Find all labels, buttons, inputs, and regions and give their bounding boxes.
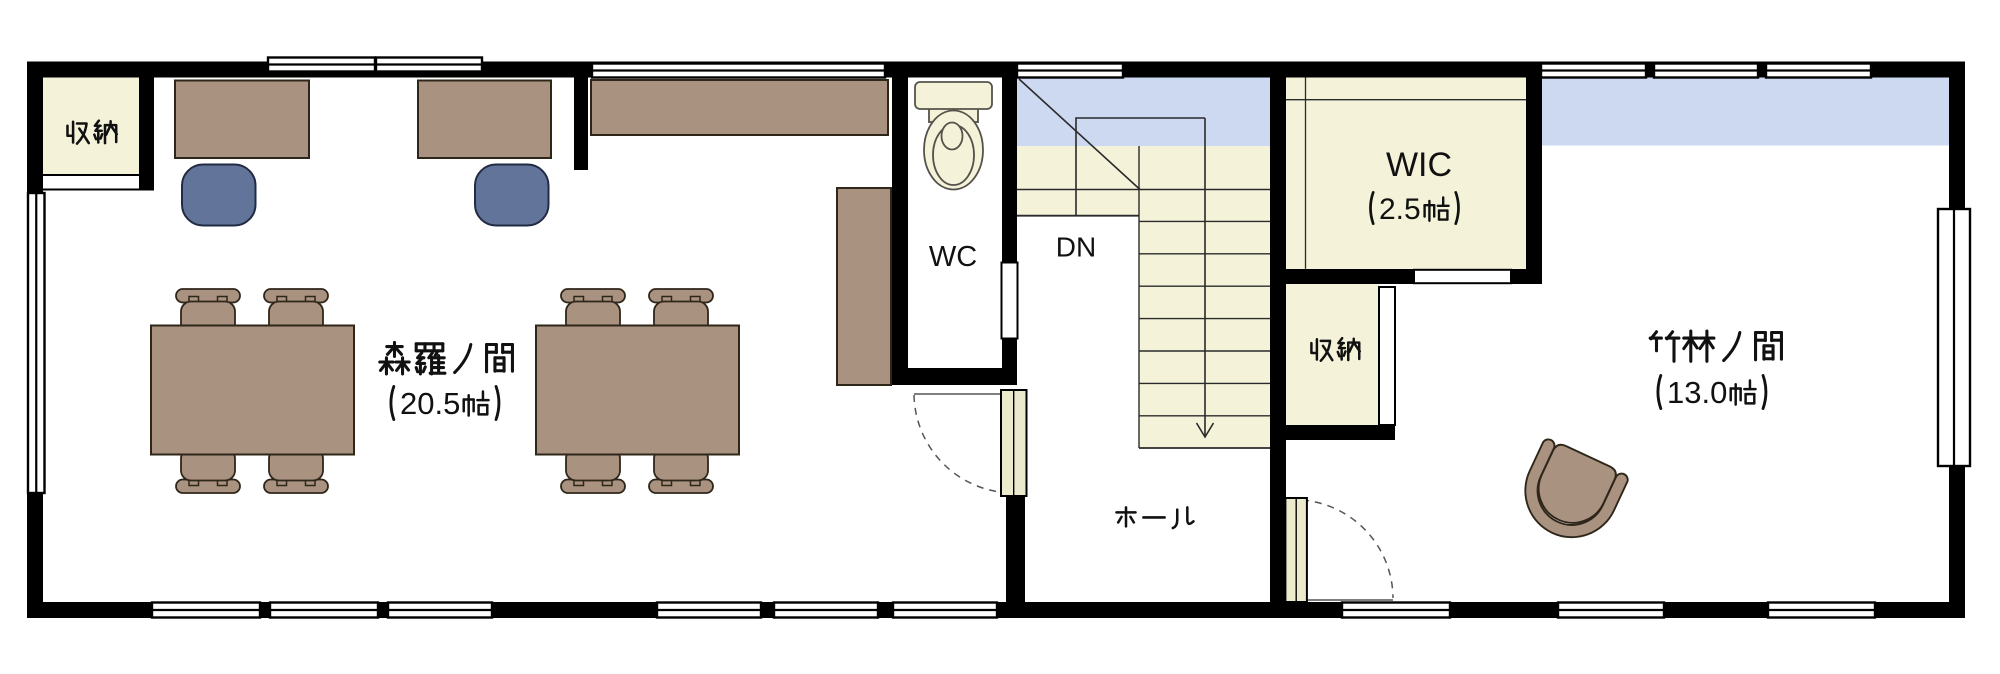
svg-text:WC: WC: [929, 241, 977, 273]
svg-text:DN: DN: [1056, 232, 1096, 263]
svg-text:2.5: 2.5: [1379, 193, 1421, 226]
svg-text:WIC: WIC: [1386, 146, 1452, 184]
svg-text:20.5: 20.5: [400, 386, 460, 421]
svg-text:13.0: 13.0: [1667, 375, 1727, 410]
